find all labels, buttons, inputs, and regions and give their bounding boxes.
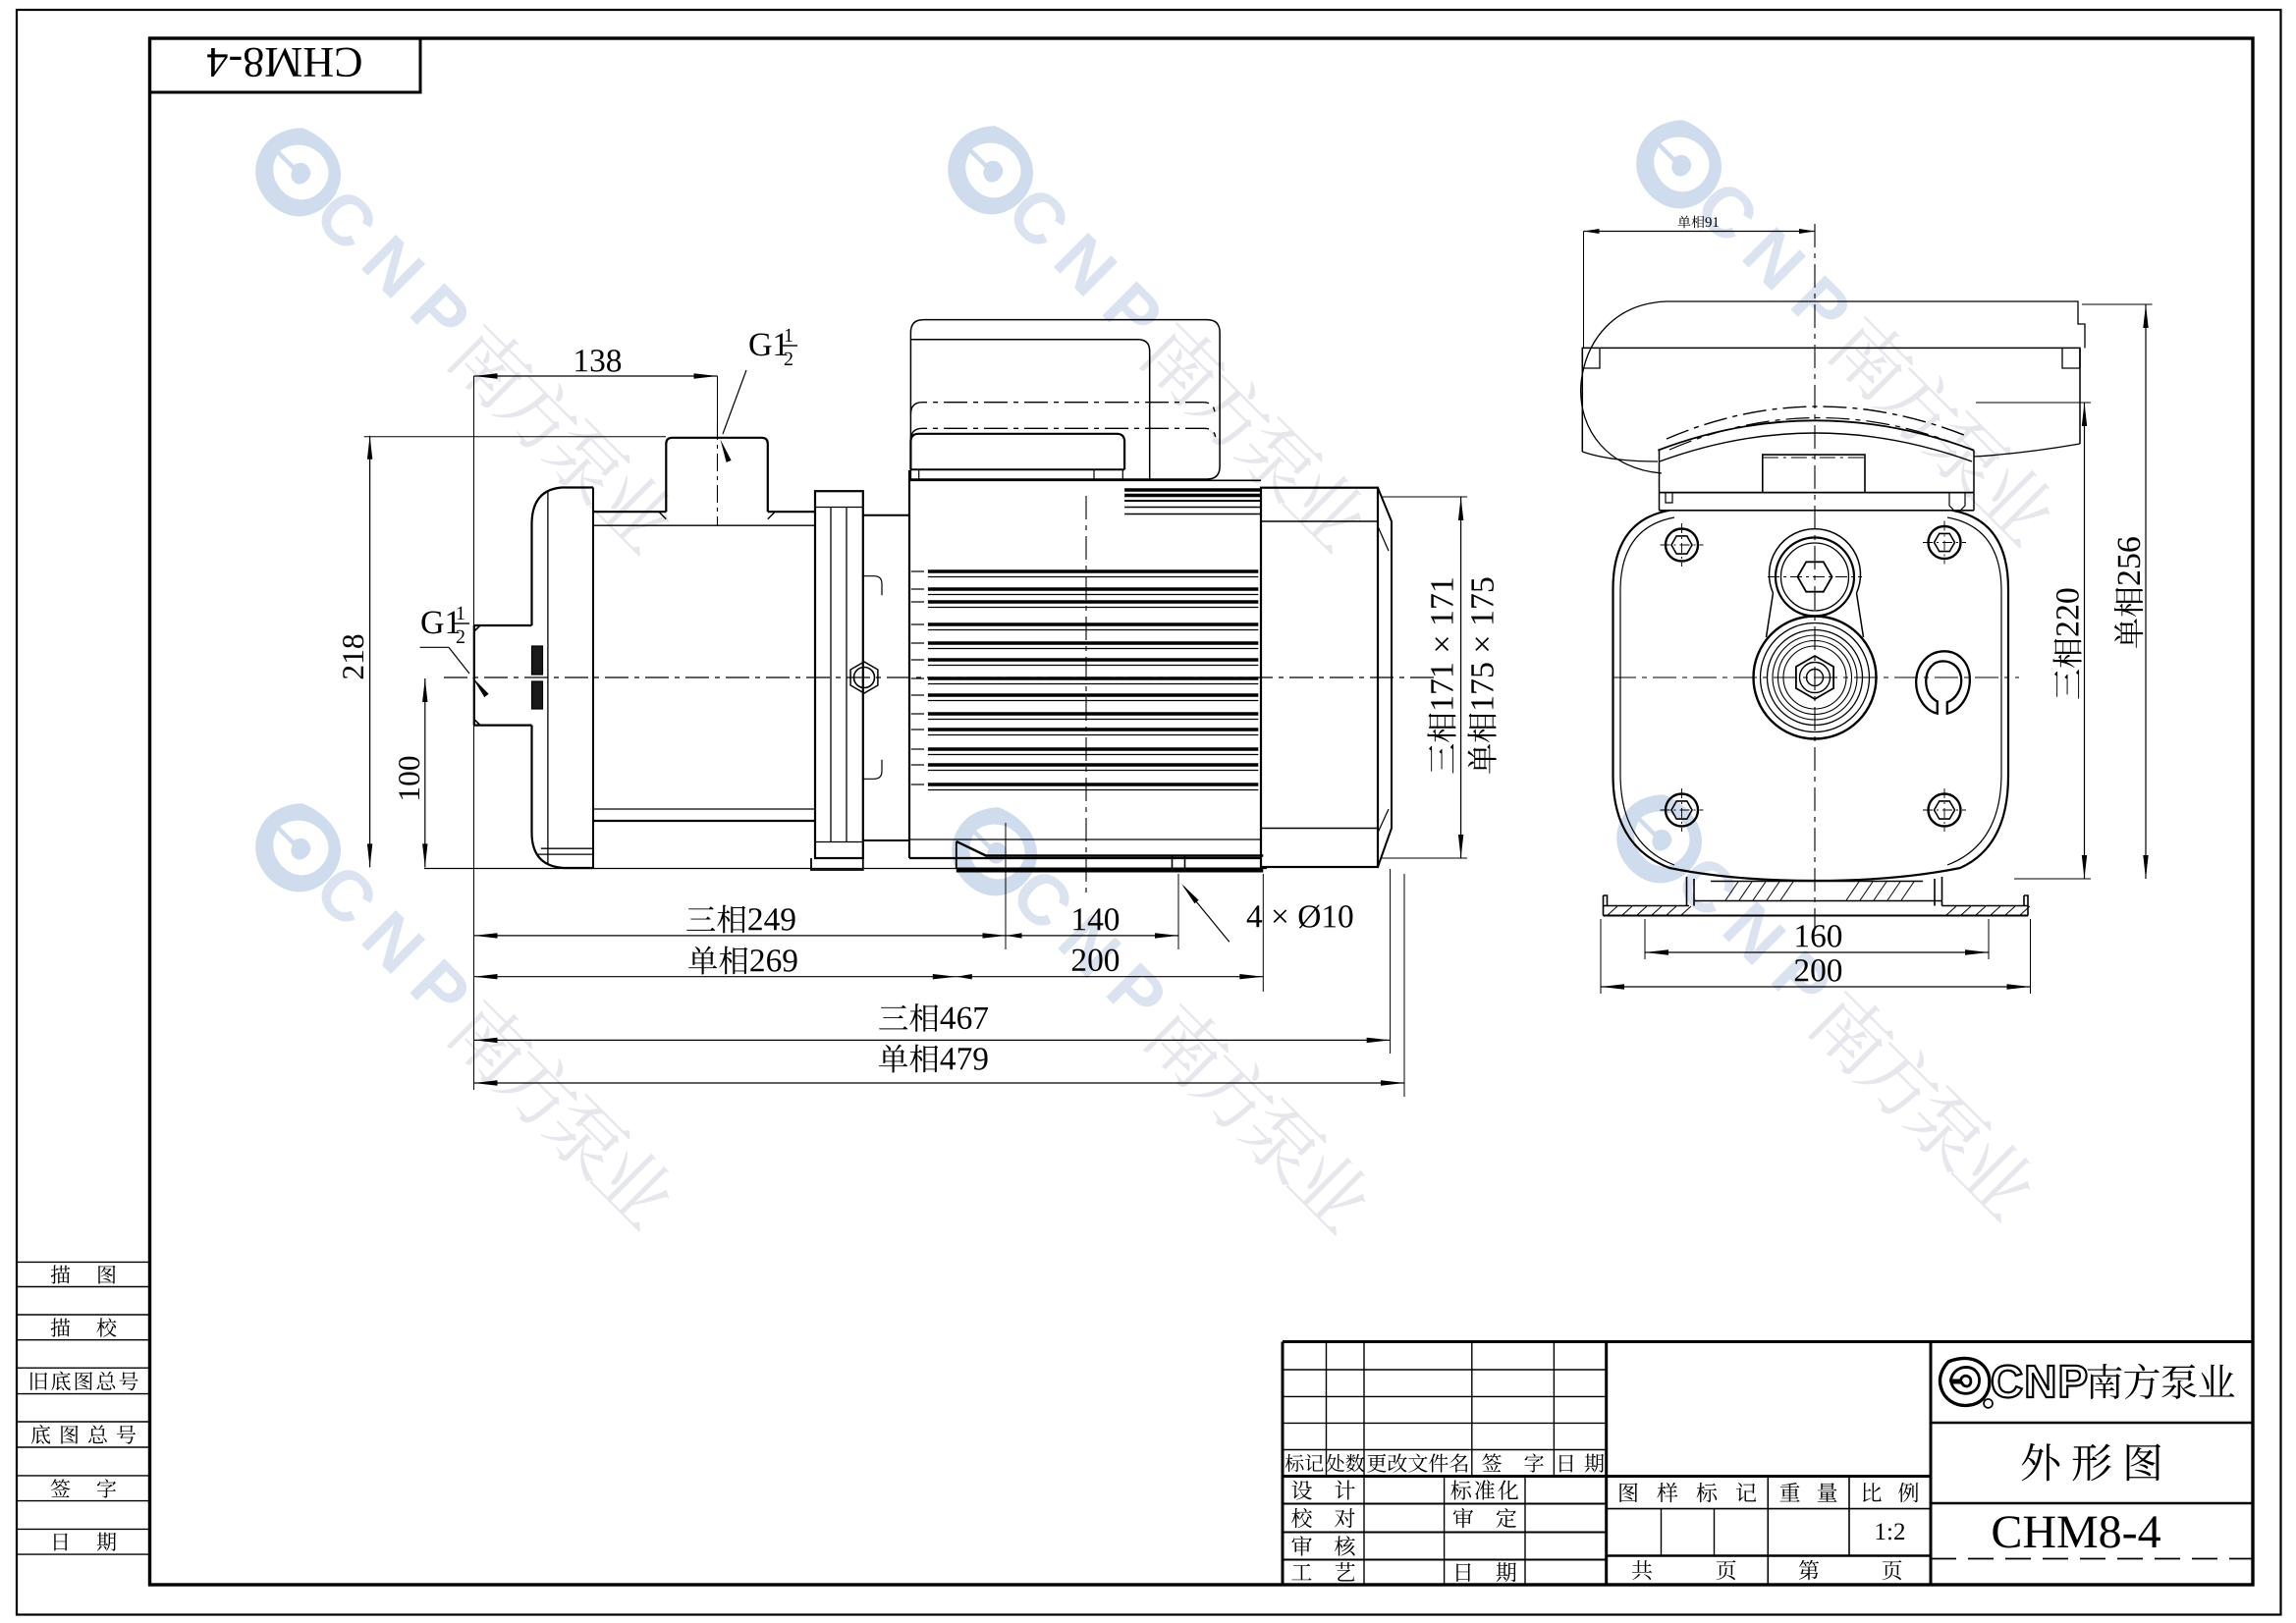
svg-text:1: 1 [784,325,793,347]
svg-text:1:2: 1:2 [1875,1519,1906,1545]
svg-text:175 × 175: 175 × 175 [1465,576,1502,712]
svg-text:140: 140 [1070,901,1120,938]
svg-text:256: 256 [2111,536,2148,586]
svg-text:100: 100 [392,755,426,801]
svg-text:CNP: CNP [1991,1356,2089,1407]
svg-text:220: 220 [2050,587,2087,637]
svg-text:269: 269 [749,943,798,979]
svg-text:160: 160 [1793,918,1842,954]
svg-text:CHM8-4: CHM8-4 [1991,1506,2160,1558]
svg-text:200: 200 [1070,943,1120,979]
svg-text:200: 200 [1793,952,1842,989]
svg-text:467: 467 [940,1001,989,1037]
svg-text:138: 138 [573,343,622,379]
svg-text:4 × Ø10: 4 × Ø10 [1246,898,1354,935]
svg-text:2: 2 [784,349,793,370]
svg-text:218: 218 [336,633,370,679]
svg-text:CHM8-4: CHM8-4 [207,38,363,86]
svg-text:2: 2 [456,626,465,648]
svg-text:249: 249 [747,901,796,938]
svg-text:171 × 171: 171 × 171 [1425,576,1461,712]
svg-text:479: 479 [940,1041,989,1077]
svg-text:91: 91 [1705,215,1720,231]
svg-text:1: 1 [456,603,465,624]
